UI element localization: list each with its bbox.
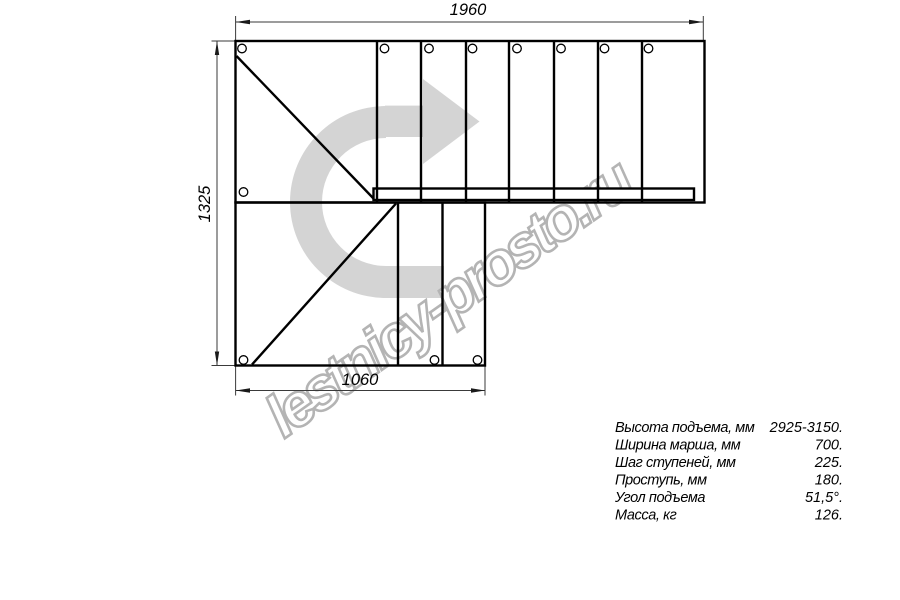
svg-text:180.: 180. (815, 473, 843, 489)
svg-text:700.: 700. (815, 438, 843, 454)
svg-text:Проступь, мм: Проступь, мм (615, 473, 707, 489)
svg-text:Шаг ступеней, мм: Шаг ступеней, мм (615, 455, 736, 471)
svg-text:126.: 126. (815, 508, 843, 524)
svg-text:Высота подъема, мм: Высота подъема, мм (615, 420, 755, 436)
svg-text:1960: 1960 (450, 1, 488, 19)
svg-text:1325: 1325 (196, 185, 214, 223)
svg-text:Угол подъема: Угол подъема (614, 490, 705, 506)
svg-text:Масса, кг: Масса, кг (615, 508, 677, 524)
svg-text:Ширина марша, мм: Ширина марша, мм (615, 438, 741, 454)
svg-text:51,5°.: 51,5°. (805, 490, 843, 506)
svg-text:1060: 1060 (342, 371, 380, 389)
svg-text:2925-3150.: 2925-3150. (769, 420, 843, 436)
svg-text:225.: 225. (814, 455, 843, 471)
